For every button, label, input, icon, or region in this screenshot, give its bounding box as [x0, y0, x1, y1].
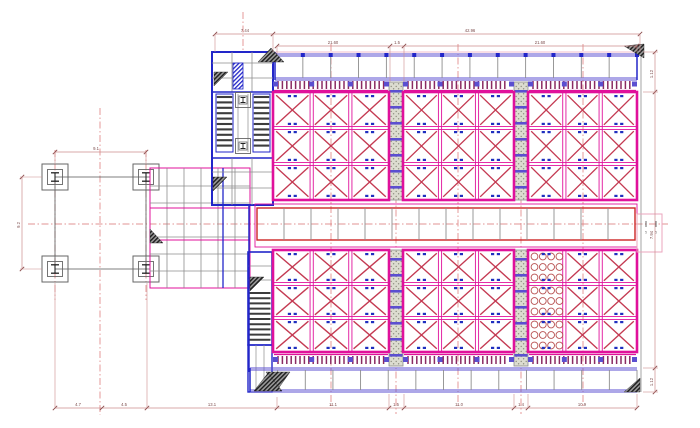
svg-text:10.9: 10.9 [578, 402, 587, 407]
svg-text:9.1: 9.1 [93, 146, 99, 151]
svg-text:1.5: 1.5 [394, 40, 400, 45]
svg-text:11.0: 11.0 [455, 402, 464, 407]
svg-text:7.94: 7.94 [649, 230, 654, 239]
svg-text:1.12: 1.12 [649, 377, 654, 386]
panel-blocks [273, 92, 637, 352]
svg-text:21.60: 21.60 [535, 40, 546, 45]
braced-panel-block [403, 250, 514, 352]
svg-text:1.5: 1.5 [393, 402, 399, 407]
plan-svg: 557.4442.9621.601.521.604.74.513.111.11.… [0, 0, 700, 428]
svg-text:13.1: 13.1 [208, 402, 217, 407]
svg-text:4.5: 4.5 [121, 402, 127, 407]
braced-panel-block [528, 250, 637, 352]
foundation-plan [42, 164, 159, 282]
structural-framing-plan: 557.4442.9621.601.521.604.74.513.111.11.… [0, 0, 700, 428]
top-chord-band [273, 52, 640, 80]
braced-panel-block [403, 92, 514, 200]
corridor [255, 204, 637, 247]
svg-text:21.60: 21.60 [328, 40, 339, 45]
svg-text:5: 5 [645, 231, 647, 235]
svg-text:42.96: 42.96 [465, 28, 476, 33]
svg-text:1.12: 1.12 [649, 69, 654, 78]
braced-panel-block [528, 92, 637, 200]
stair-lower [248, 205, 272, 392]
svg-text:7.44: 7.44 [241, 28, 250, 33]
corridor-end-box: 55 [637, 52, 662, 392]
link-platform [150, 168, 250, 288]
svg-text:9.2: 9.2 [16, 221, 21, 227]
bottom-chord-band [250, 368, 637, 392]
svg-text:1.4: 1.4 [518, 402, 524, 407]
svg-text:4.7: 4.7 [75, 402, 81, 407]
svg-text:11.1: 11.1 [329, 402, 338, 407]
svg-text:5: 5 [655, 231, 657, 235]
cad-drawing-canvas: 557.4442.9621.601.521.604.74.513.111.11.… [0, 0, 700, 428]
